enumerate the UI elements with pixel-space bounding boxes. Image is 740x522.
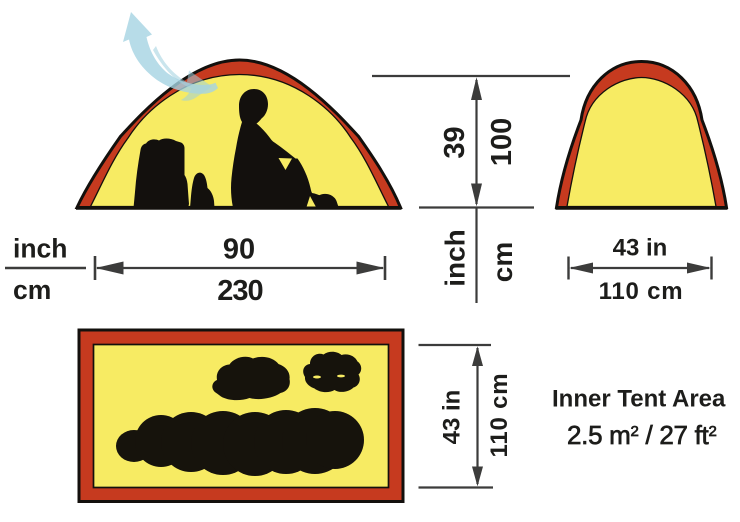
svg-text:43 in: 43 in <box>438 390 465 445</box>
svg-text:110 cm: 110 cm <box>599 278 684 305</box>
svg-text:230: 230 <box>217 275 262 307</box>
svg-text:cm: cm <box>487 242 518 282</box>
svg-text:90: 90 <box>223 234 255 266</box>
svg-text:2.5 m2 / 27 ft2: 2.5 m2 / 27 ft2 <box>567 420 717 450</box>
svg-text:110 cm: 110 cm <box>486 373 513 458</box>
svg-text:100: 100 <box>486 118 518 166</box>
svg-text:inch: inch <box>13 234 67 264</box>
svg-text:inch: inch <box>440 229 471 287</box>
svg-text:39: 39 <box>439 126 471 158</box>
svg-text:43 in: 43 in <box>613 235 668 262</box>
svg-text:Inner Tent Area: Inner Tent Area <box>552 386 726 413</box>
svg-text:cm: cm <box>13 275 51 305</box>
